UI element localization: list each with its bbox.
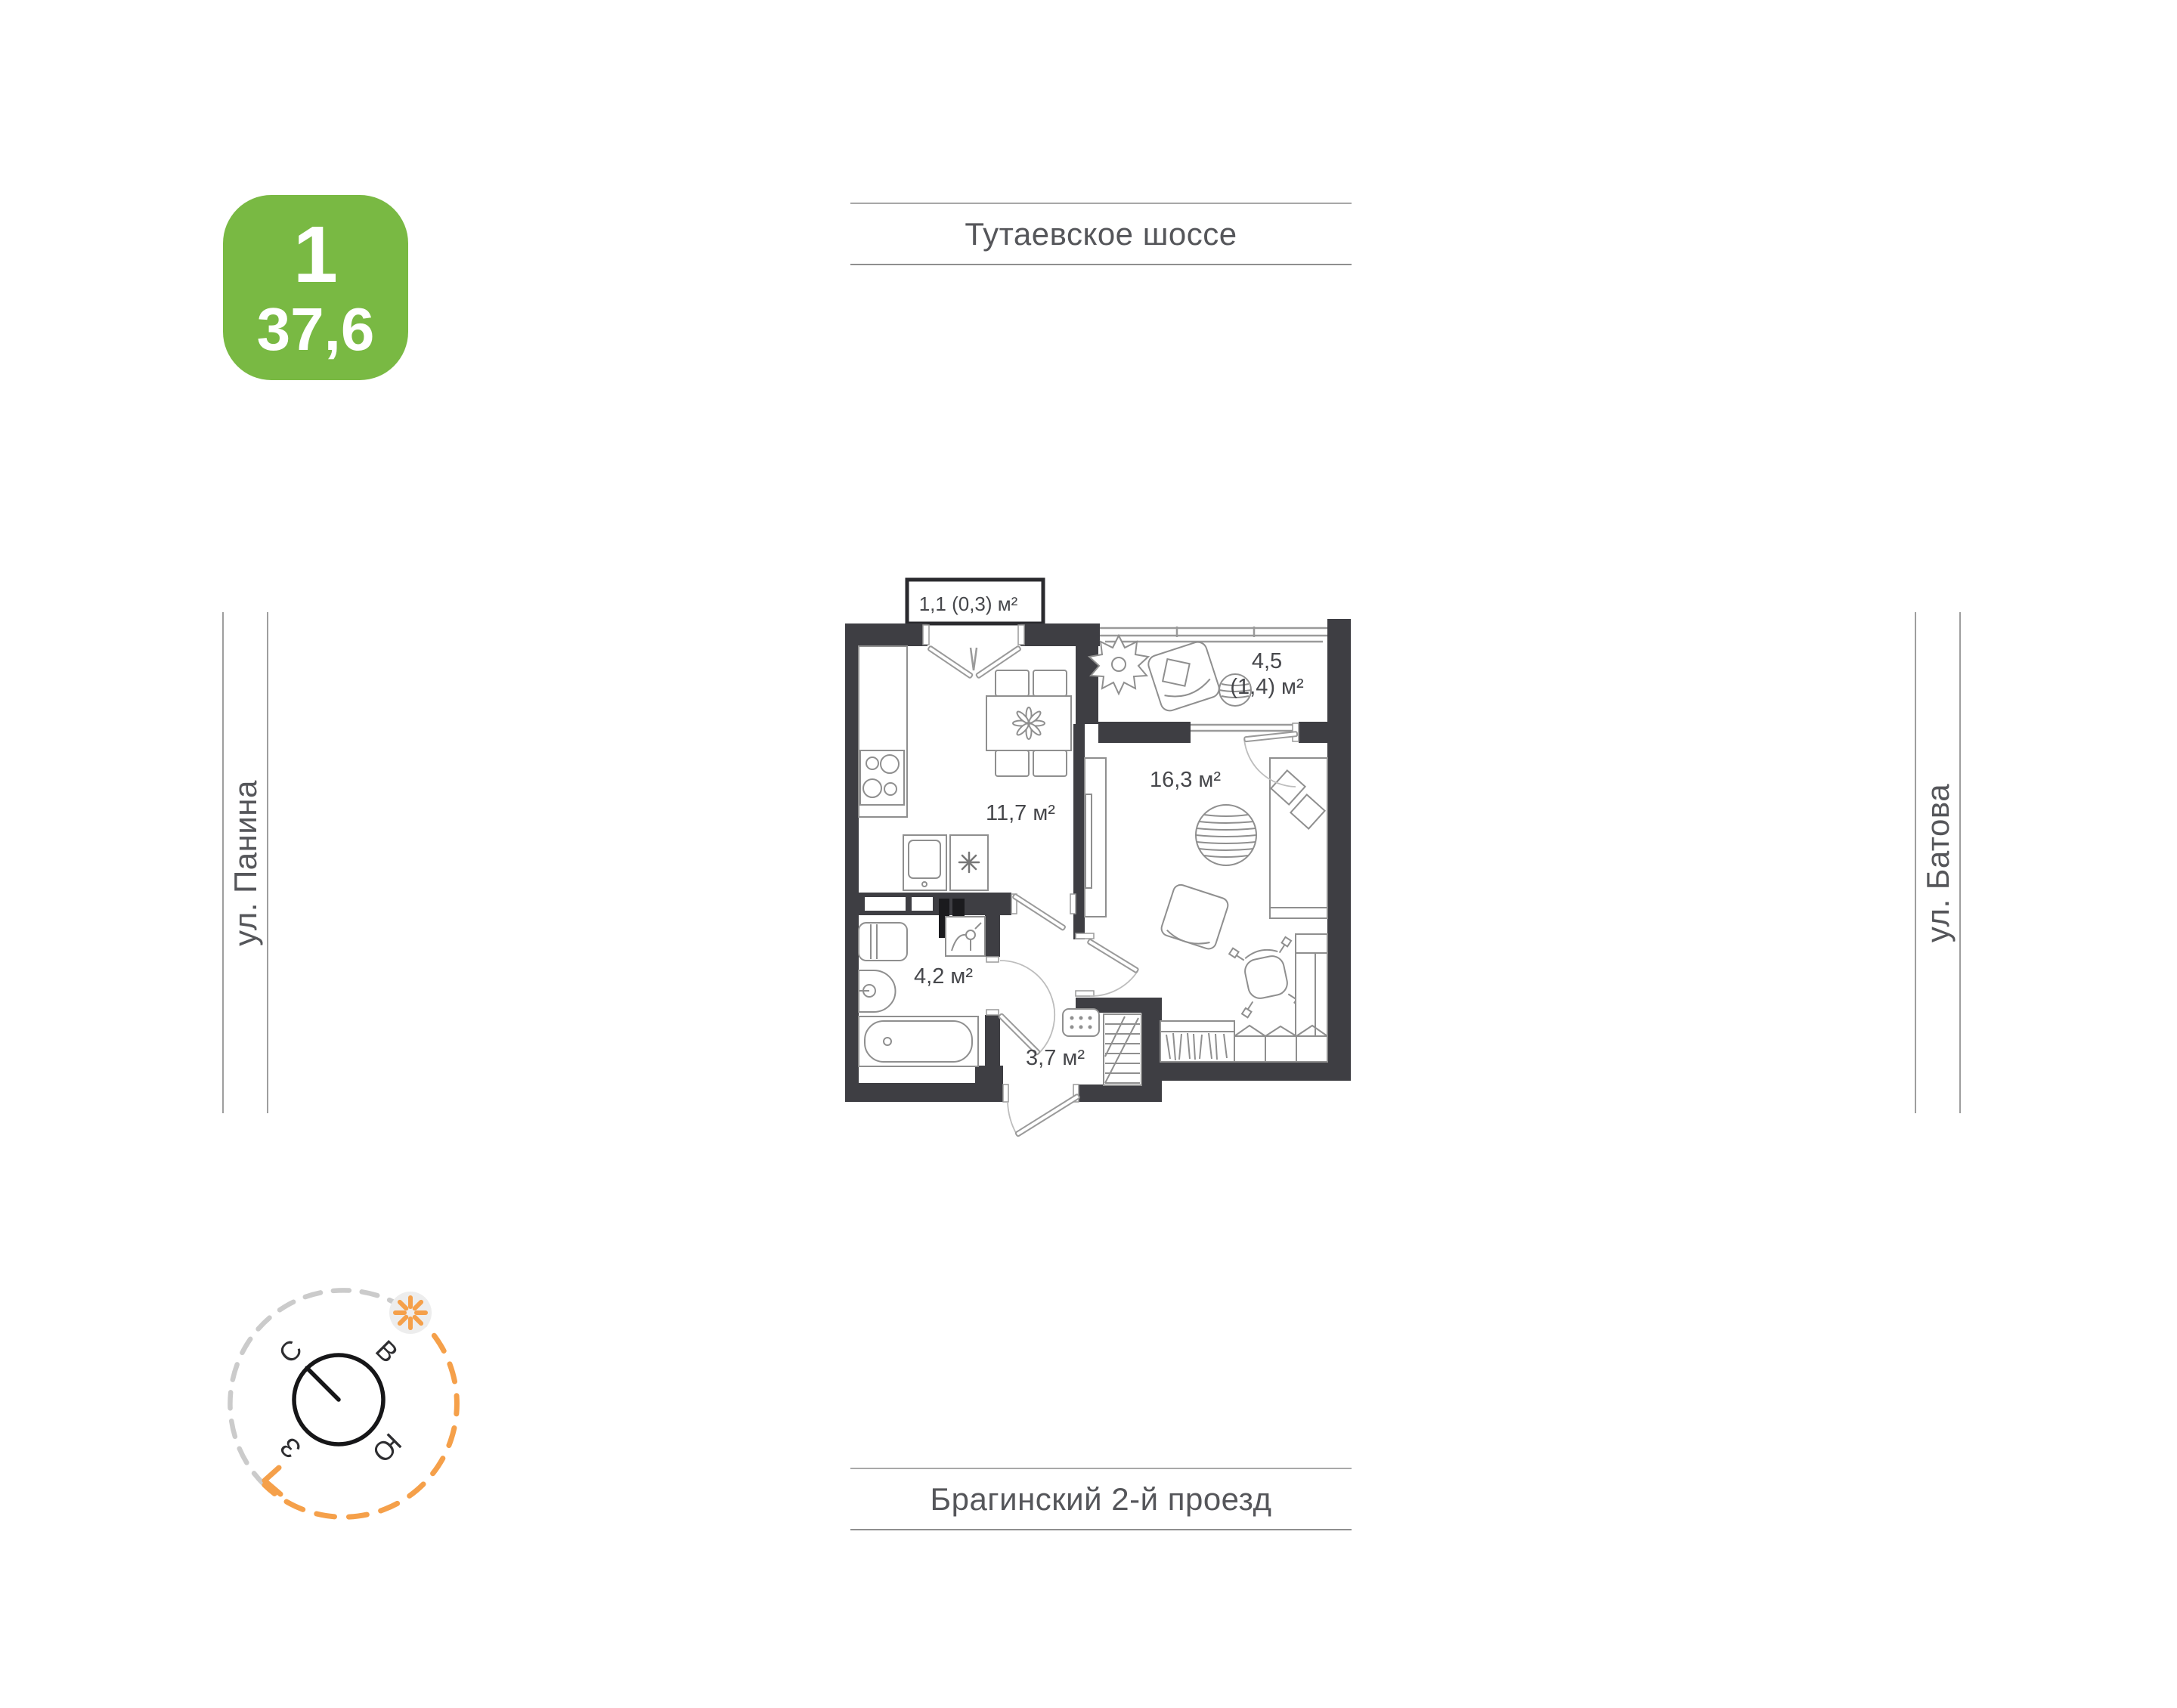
sun-icon: [389, 1292, 432, 1334]
shower-unit-icon: [946, 917, 985, 956]
hall-closet-icon: [1104, 1014, 1141, 1085]
bathroom-area-label: 4,2 м²: [914, 964, 973, 989]
floorplan-page: 1 37,6 Тутаевское шоссе Брагинский 2-й п…: [0, 0, 2177, 1708]
bathroom-fixtures: [859, 917, 985, 1066]
loggia-furniture: [1089, 636, 1251, 713]
living-armchair: [1160, 883, 1230, 951]
toilet-icon: [859, 923, 907, 961]
street-label-top: Тутаевское шоссе: [850, 203, 1352, 265]
doormat-icon: [1063, 1009, 1099, 1036]
loggia-area-label: 4,5: [1252, 649, 1282, 673]
hallway-area-label: 3,7 м²: [1026, 1046, 1085, 1070]
flower-icon: [1013, 707, 1045, 739]
kitchen-area-label: 11,7 м²: [986, 801, 1055, 825]
room-count-label: 1: [293, 215, 338, 295]
street-name-right: ул. Батова: [1920, 783, 1956, 942]
bath-sink-icon: [859, 970, 896, 1012]
desk-chair-icon: [1228, 936, 1305, 1019]
street-name-bottom: Брагинский 2-й проезд: [931, 1481, 1272, 1518]
loggia-area-sublabel: (1,4) м²: [1230, 675, 1304, 699]
living-area-label: 16,3 м²: [1150, 768, 1221, 792]
street-name-left: ул. Панина: [228, 780, 264, 946]
balcony-area-label: 1,1 (0,3) м²: [919, 593, 1018, 615]
compass-south-letter: Ю: [367, 1428, 408, 1469]
compass-west-letter: З: [274, 1431, 307, 1465]
street-name-top: Тутаевское шоссе: [965, 216, 1237, 252]
compass: С В Ю З: [203, 1251, 482, 1553]
rug-icon: [1196, 805, 1256, 865]
bed-icon: [1270, 758, 1327, 918]
snowflake-icon: [959, 852, 979, 872]
loggia-armchair: [1146, 639, 1222, 713]
hanger-wardrobe-icon: [1160, 1021, 1234, 1062]
compass-north-letter: С: [272, 1333, 308, 1369]
kitchen-furniture: [859, 646, 1071, 890]
street-label-left: ул. Панина: [222, 612, 268, 1113]
street-label-bottom: Брагинский 2-й проезд: [850, 1468, 1352, 1530]
compass-east-letter: В: [370, 1334, 404, 1369]
street-label-right: ул. Батова: [1915, 612, 1961, 1113]
dining-set: [986, 670, 1071, 776]
total-area-label: 37,6: [257, 298, 375, 361]
floor-plan: 1,1 (0,3) м² 4,5 (1,4) м² 11,7 м² 16,3 м…: [839, 569, 1368, 1147]
bathtub-icon: [859, 1016, 978, 1066]
area-badge: 1 37,6: [223, 195, 408, 380]
